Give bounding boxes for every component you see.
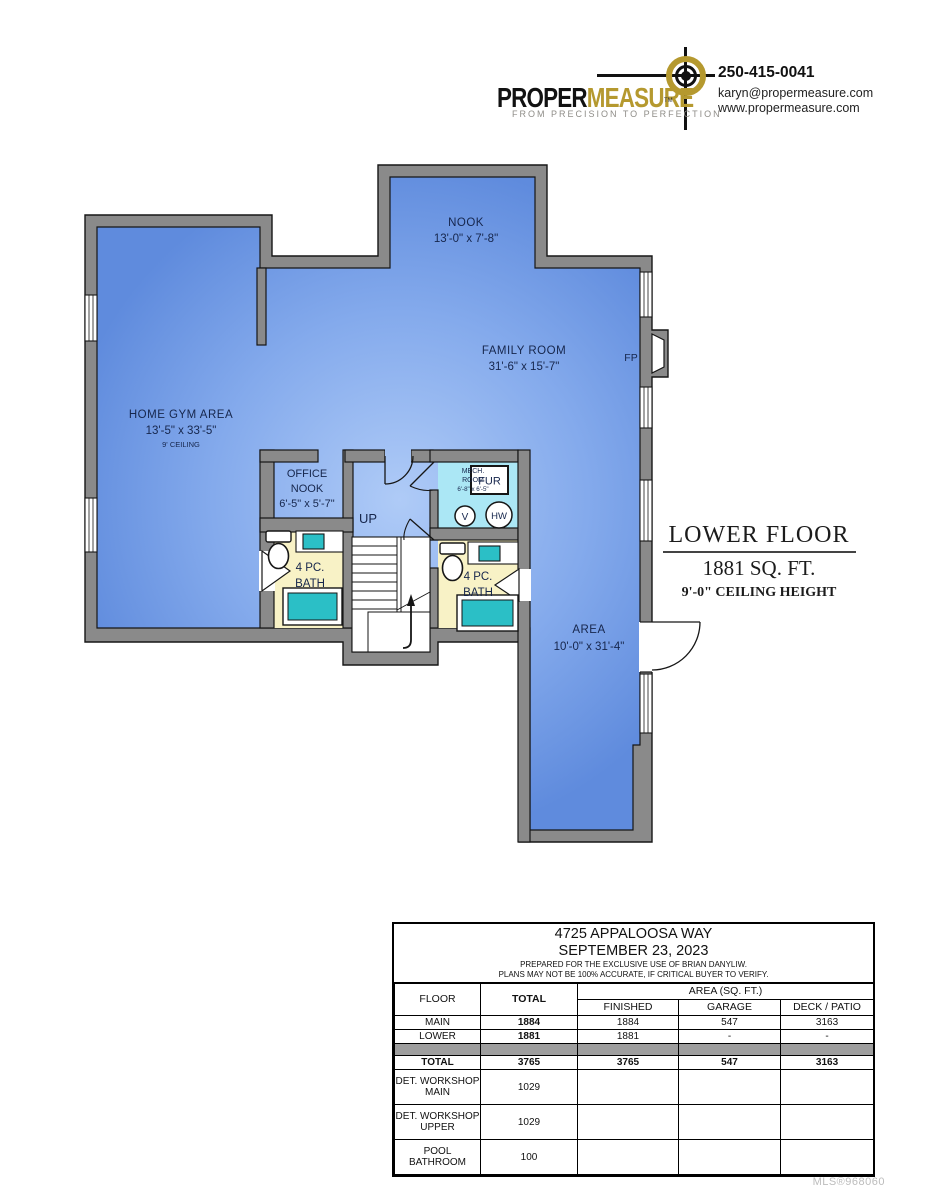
table-title: 4725 APPALOOSA WAY SEPTEMBER 23, 2023 PR… bbox=[394, 924, 873, 983]
staircase bbox=[352, 537, 430, 652]
table-row-lower: LOWER 1881 1881 - - bbox=[395, 1030, 874, 1044]
vacuum-label: V bbox=[462, 512, 469, 523]
furnace-label: FUR bbox=[478, 476, 501, 488]
title-block: LOWER FLOOR 1881 SQ. FT. 9'-0" CEILING H… bbox=[645, 522, 873, 601]
table-row-total: TOTAL 3765 3765 547 3163 bbox=[395, 1056, 874, 1070]
address: 4725 APPALOOSA WAY bbox=[394, 926, 873, 943]
sink bbox=[479, 546, 500, 561]
tub-inner bbox=[288, 593, 337, 620]
office-nook-dims: 6'-5" x 5'-7" bbox=[279, 498, 335, 510]
toilet-tank bbox=[440, 543, 465, 554]
col-header-finished: FINISHED bbox=[578, 1000, 679, 1016]
note-1: PREPARED FOR THE EXCLUSIVE USE OF BRIAN … bbox=[394, 960, 873, 970]
mls-number: MLS®968060 bbox=[813, 1176, 885, 1188]
family-room-label: FAMILY ROOM bbox=[482, 345, 566, 357]
col-header-deck: DECK / PATIO bbox=[781, 1000, 874, 1016]
floor-surface bbox=[97, 177, 640, 830]
table-row-workshop-main: DET. WORKSHOP MAIN 1029 bbox=[395, 1070, 874, 1105]
date: SEPTEMBER 23, 2023 bbox=[394, 943, 873, 960]
col-header-floor: FLOOR bbox=[395, 984, 481, 1016]
area-summary-table: 4725 APPALOOSA WAY SEPTEMBER 23, 2023 PR… bbox=[392, 922, 875, 1177]
toilet-bowl bbox=[443, 556, 463, 581]
up-label: UP bbox=[359, 511, 377, 526]
table-separator-row bbox=[395, 1044, 874, 1056]
mech-room-label1: MECH. bbox=[462, 468, 485, 475]
nook-dims: 13'-0" x 7'-8" bbox=[434, 233, 498, 245]
hot-water-label: HW bbox=[491, 511, 507, 522]
family-room-dims: 31'-6" x 15'-7" bbox=[489, 361, 560, 373]
ceiling-height: 9'-0" CEILING HEIGHT bbox=[645, 585, 873, 601]
office-nook-label1: OFFICE bbox=[287, 468, 327, 480]
col-header-garage: GARAGE bbox=[679, 1000, 781, 1016]
bath-right-label1: 4 PC. bbox=[464, 571, 493, 583]
floor-title: LOWER FLOOR bbox=[663, 522, 856, 553]
note-2: PLANS MAY NOT BE 100% ACCURATE, IF CRITI… bbox=[394, 970, 873, 980]
area-dims: 10'-0" x 31'-4" bbox=[554, 641, 625, 653]
sink bbox=[303, 534, 324, 549]
fireplace-label: FP bbox=[624, 352, 637, 364]
col-header-total: TOTAL bbox=[481, 984, 578, 1016]
gym-ceiling-note: 9' CEILING bbox=[162, 440, 200, 449]
bath-left-label2: BATH bbox=[295, 578, 325, 590]
gym-dims: 13'-5" x 33'-5" bbox=[146, 425, 217, 437]
col-group-area: AREA (SQ. FT.) bbox=[578, 984, 874, 1000]
tub-inner bbox=[462, 600, 513, 626]
table-row-workshop-upper: DET. WORKSHOP UPPER 1029 bbox=[395, 1105, 874, 1140]
toilet-tank bbox=[266, 531, 291, 542]
office-nook-label2: NOOK bbox=[291, 483, 324, 495]
table-row-main: MAIN 1884 1884 547 3163 bbox=[395, 1016, 874, 1030]
gym-label: HOME GYM AREA bbox=[129, 409, 233, 421]
fireplace bbox=[652, 334, 664, 373]
floor-area: 1881 SQ. FT. bbox=[645, 556, 873, 581]
area-label: AREA bbox=[572, 624, 605, 636]
bath-left-label1: 4 PC. bbox=[296, 562, 325, 574]
nook-label: NOOK bbox=[448, 217, 484, 229]
toilet-bowl bbox=[269, 544, 289, 569]
bath-right-label2: BATH bbox=[463, 587, 493, 599]
table-row-pool-bathroom: POOL BATHROOM 100 bbox=[395, 1140, 874, 1175]
